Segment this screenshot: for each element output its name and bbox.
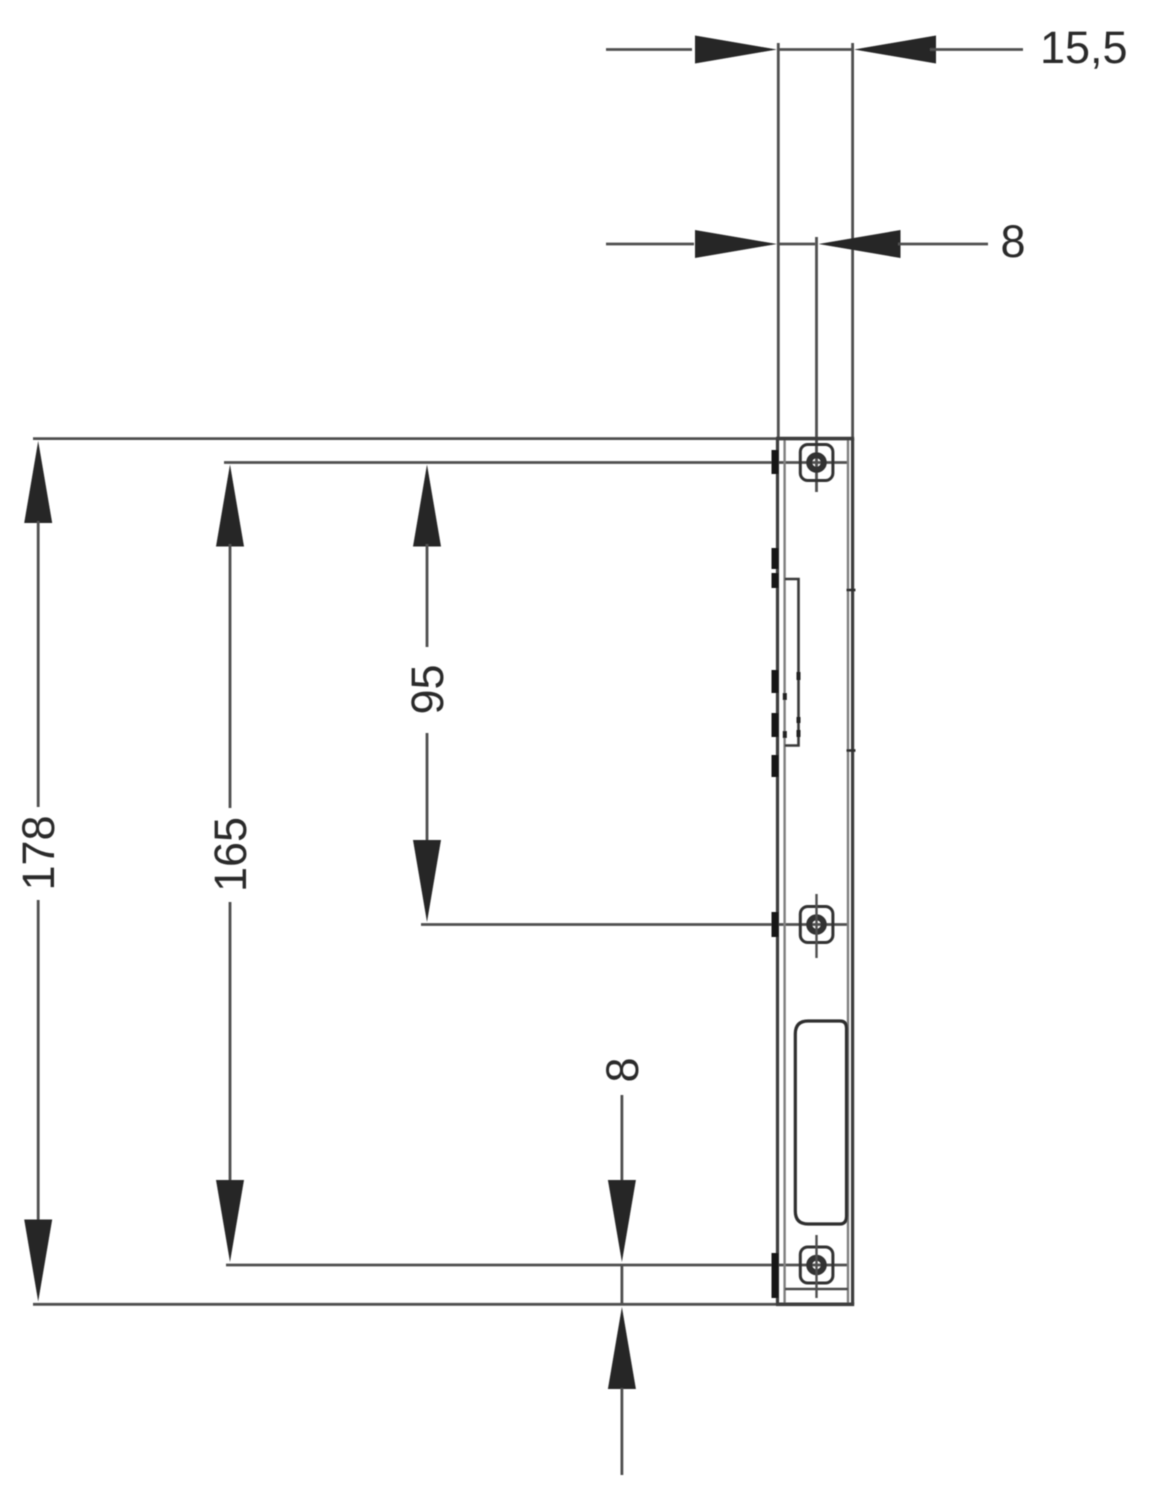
svg-text:15,5: 15,5 bbox=[1040, 22, 1128, 73]
svg-text:95: 95 bbox=[402, 664, 453, 714]
svg-text:8: 8 bbox=[597, 1057, 648, 1082]
svg-text:165: 165 bbox=[205, 817, 256, 892]
svg-text:178: 178 bbox=[13, 815, 64, 890]
svg-text:8: 8 bbox=[1000, 216, 1025, 267]
